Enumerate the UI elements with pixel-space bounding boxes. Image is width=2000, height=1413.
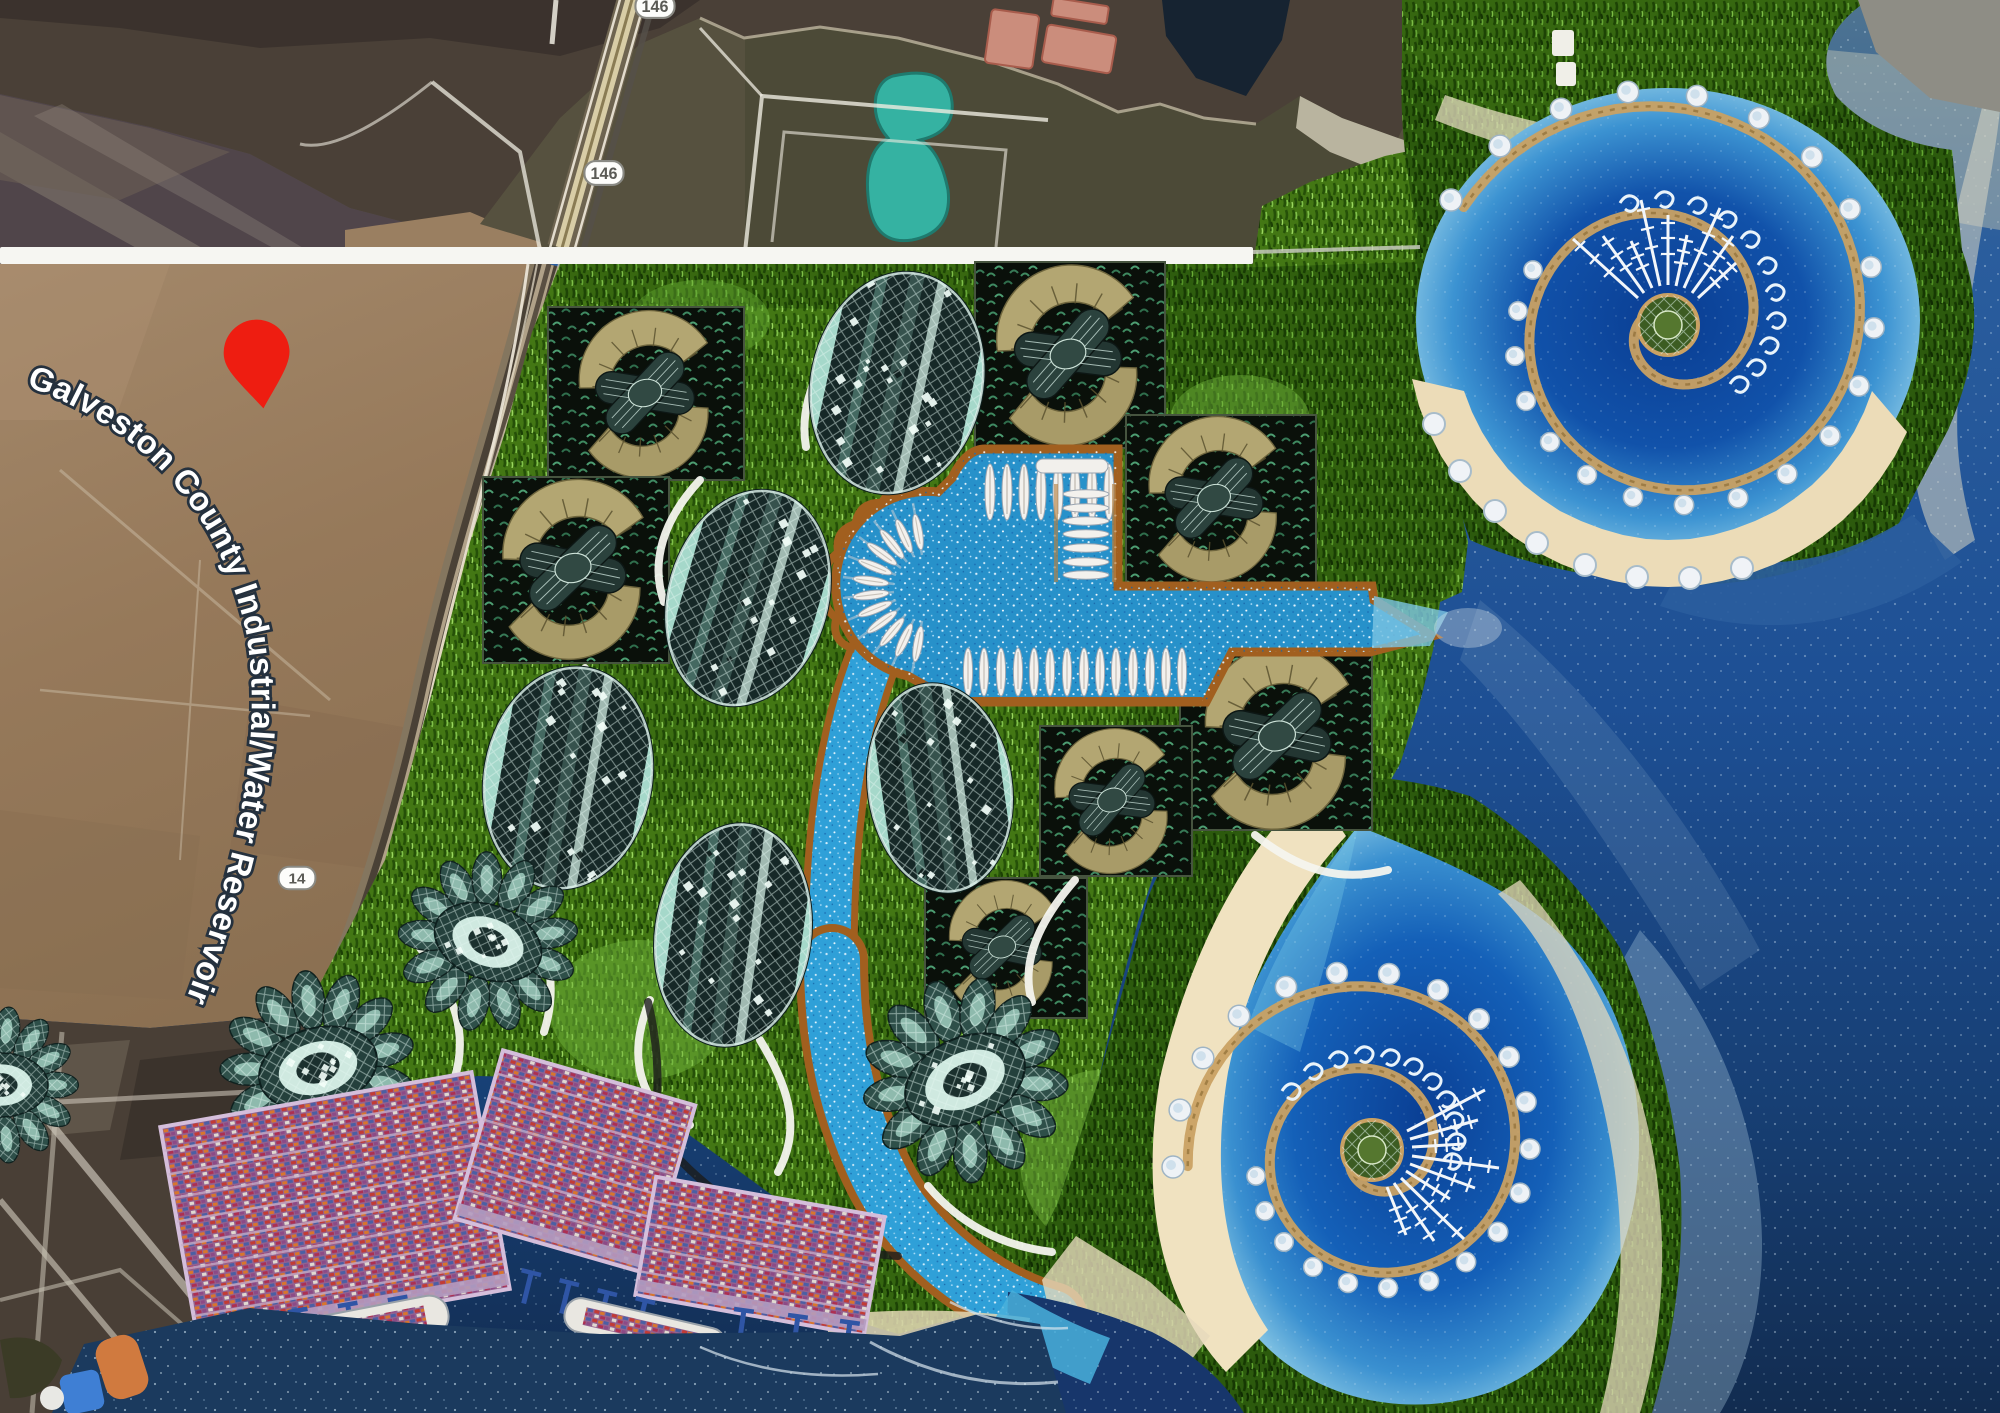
svg-text:146: 146 (591, 165, 618, 183)
svg-text:146: 146 (642, 0, 669, 16)
svg-text:14: 14 (289, 871, 306, 888)
